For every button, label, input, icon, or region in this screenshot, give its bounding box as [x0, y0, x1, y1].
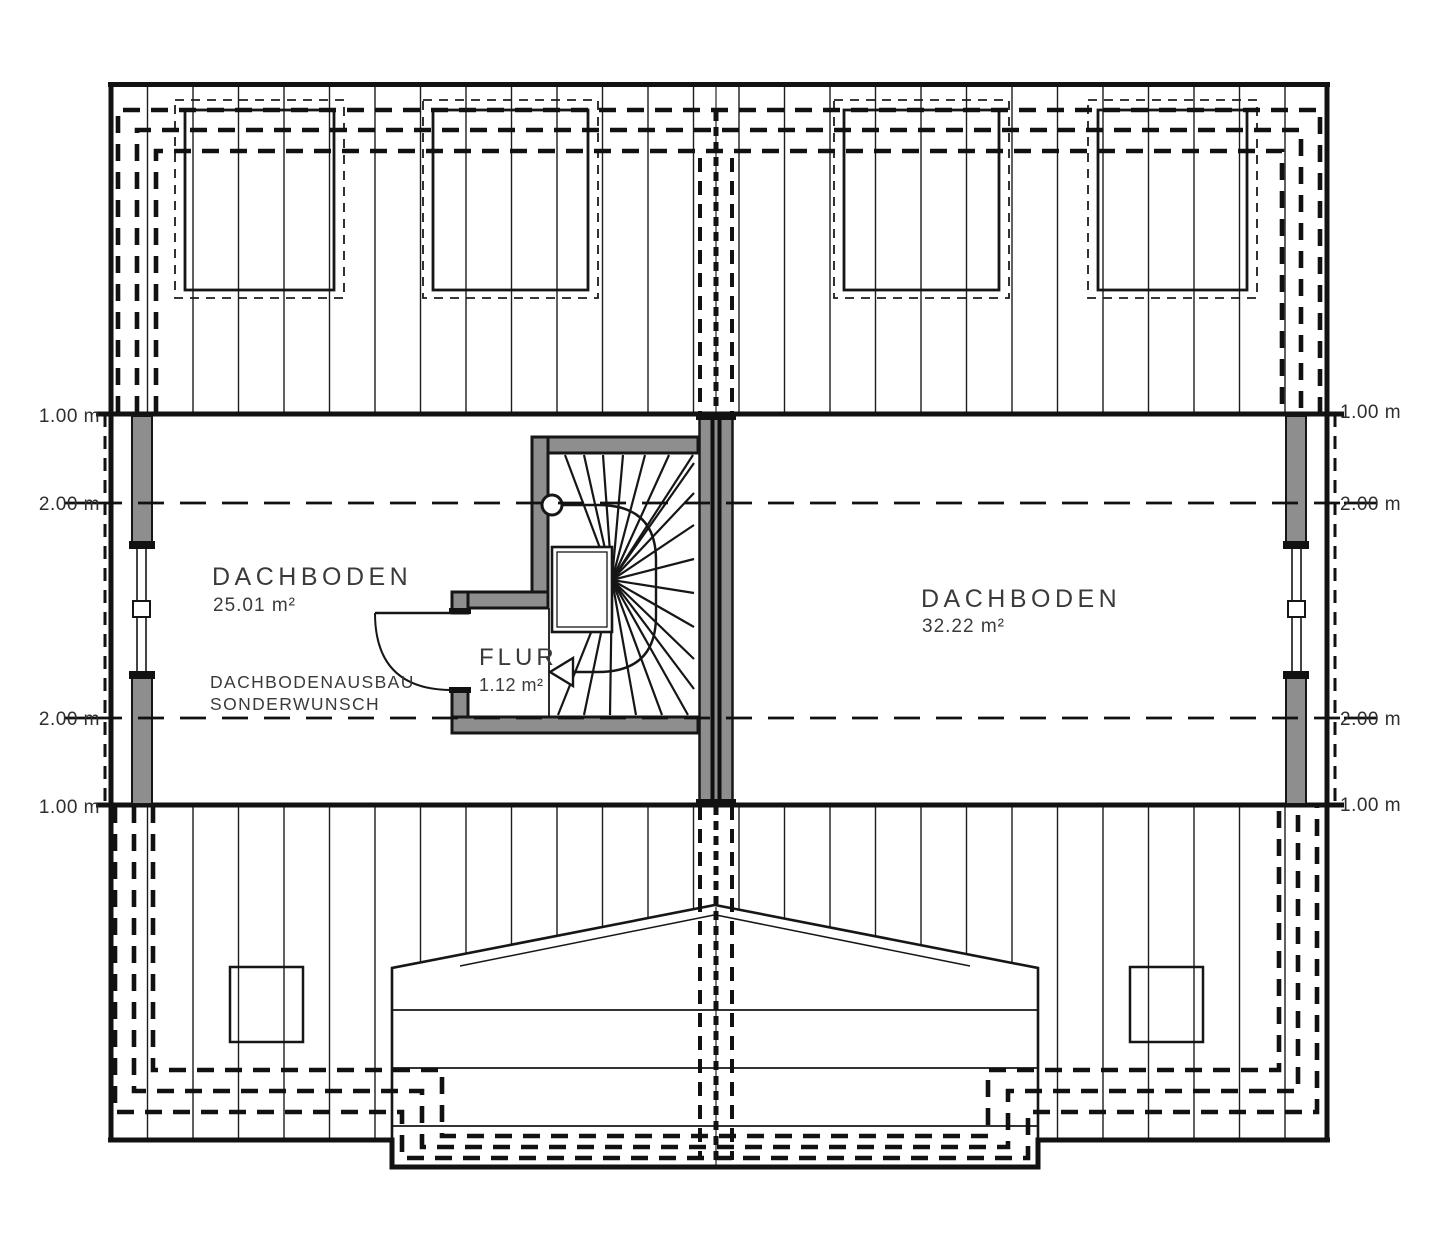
- dim-left-3: 2.00 m: [39, 709, 100, 730]
- dim-left-1: 1.00 m: [39, 406, 100, 427]
- dim-left-4: 1.00 m: [39, 797, 100, 818]
- right-room-name: DACHBODEN: [921, 585, 1121, 613]
- left-window-mullion: [133, 601, 150, 617]
- left-wall-cap-upper: [129, 541, 155, 549]
- right-wall-cap-lower: [1283, 671, 1309, 679]
- party-wall-fill: [699, 413, 733, 806]
- left-room-area: 25.01 m²: [213, 595, 296, 616]
- door-frame-cap-bottom: [449, 687, 471, 693]
- annotation-line-1: DACHBODENAUSBAU: [210, 672, 415, 692]
- dim-right-4: 1.00 m: [1340, 795, 1401, 816]
- dim-right-1: 1.00 m: [1340, 402, 1401, 423]
- dim-right-2: 2.00 m: [1340, 494, 1401, 515]
- party-wall: [696, 413, 736, 806]
- left-wall-lower: [132, 678, 152, 804]
- door-frame-cap-top: [449, 608, 471, 614]
- right-wall-lower: [1286, 678, 1306, 804]
- dim-left-2: 2.00 m: [39, 494, 100, 515]
- right-wall-upper: [1286, 416, 1306, 544]
- floor-plan-page: DACHBODEN 25.01 m² DACHBODENAUSBAU SONDE…: [0, 0, 1440, 1244]
- right-room-area: 32.22 m²: [922, 616, 1005, 637]
- party-wall-cap-bottom: [696, 799, 736, 806]
- hall-area: 1.12 m²: [479, 675, 544, 695]
- left-wall-upper: [132, 416, 152, 544]
- party-wall-cap-top: [696, 413, 736, 420]
- right-wall: [1283, 416, 1309, 804]
- hall-name: FLUR: [479, 644, 558, 671]
- left-wall-cap-lower: [129, 671, 155, 679]
- dim-right-3: 2.00 m: [1340, 709, 1401, 730]
- left-wall: [129, 416, 155, 804]
- stair-wall-left-upper: [532, 437, 548, 608]
- floor-plan-canvas: DACHBODEN 25.01 m² DACHBODENAUSBAU SONDE…: [0, 0, 1440, 1244]
- right-wall-cap-upper: [1283, 541, 1309, 549]
- stair-wall-top: [532, 437, 698, 453]
- stair-landing: [552, 547, 612, 632]
- right-window-mullion: [1288, 601, 1305, 617]
- walking-line-start-circle: [542, 495, 562, 515]
- stair-wall-bottom: [452, 717, 698, 733]
- left-room-name: DACHBODEN: [212, 563, 412, 591]
- annotation-line-2: SONDERWUNSCH: [210, 694, 380, 714]
